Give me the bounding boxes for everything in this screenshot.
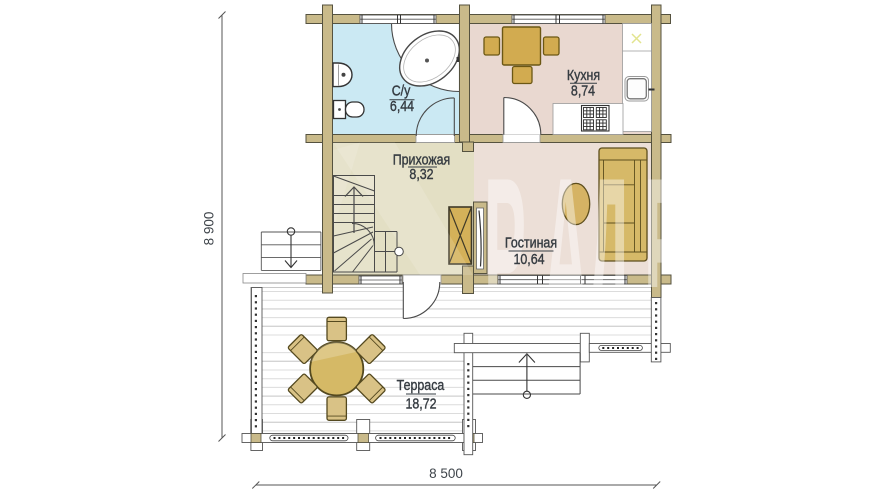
svg-text:18,72: 18,72 xyxy=(405,396,436,412)
svg-text:10,64: 10,64 xyxy=(513,251,544,267)
svg-text:8 900: 8 900 xyxy=(202,212,217,246)
svg-text:8,74: 8,74 xyxy=(571,83,596,99)
svg-text:8,32: 8,32 xyxy=(409,166,433,182)
svg-text:Гостиная: Гостиная xyxy=(505,235,557,251)
svg-text:С/у: С/у xyxy=(392,83,411,99)
svg-text:Кухня: Кухня xyxy=(567,67,600,83)
svg-text:8 500: 8 500 xyxy=(429,466,463,481)
svg-text:Терраса: Терраса xyxy=(397,377,445,393)
